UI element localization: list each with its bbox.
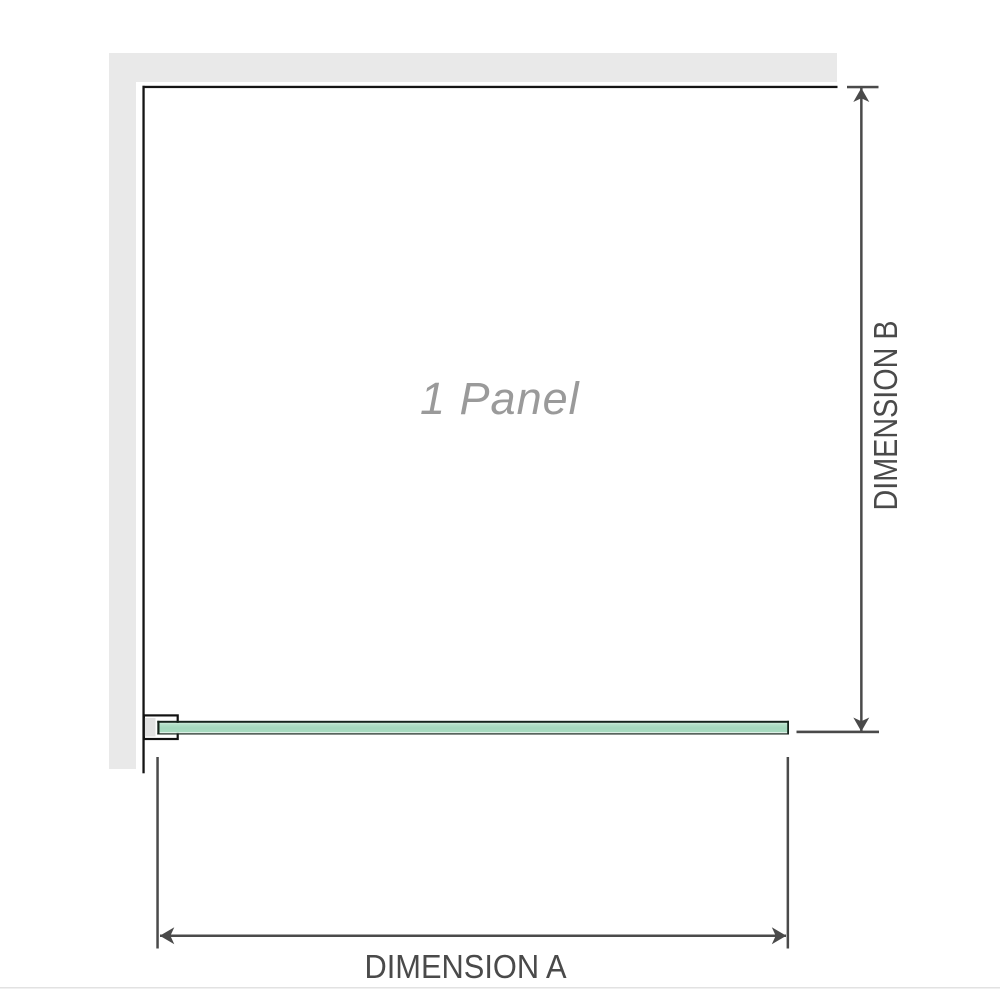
- svg-text:DIMENSION B: DIMENSION B: [867, 321, 904, 511]
- svg-text:DIMENSION A: DIMENSION A: [365, 948, 567, 985]
- svg-text:1 Panel: 1 Panel: [420, 373, 581, 424]
